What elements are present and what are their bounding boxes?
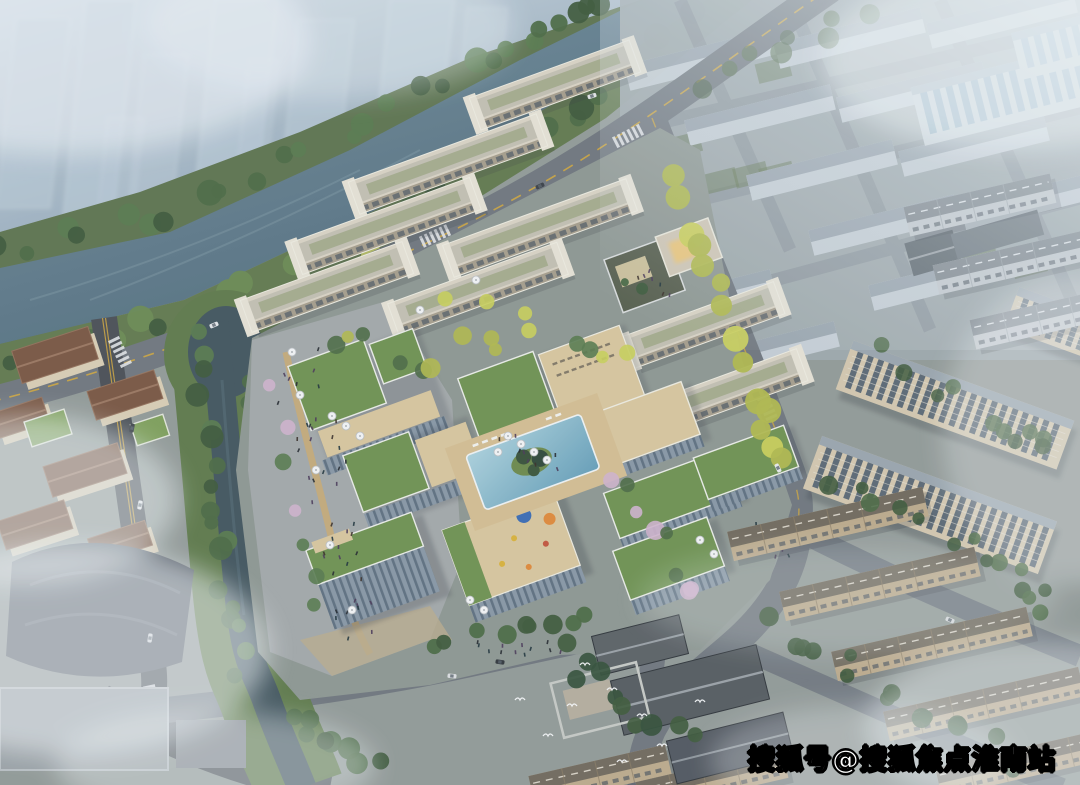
watermark-text: 搜狐号@搜狐焦点淮南站 <box>748 738 1056 777</box>
rendering-canvas <box>0 0 1080 785</box>
aerial-rendering: 搜狐号@搜狐焦点淮南站 <box>0 0 1080 785</box>
fog <box>0 0 1080 785</box>
